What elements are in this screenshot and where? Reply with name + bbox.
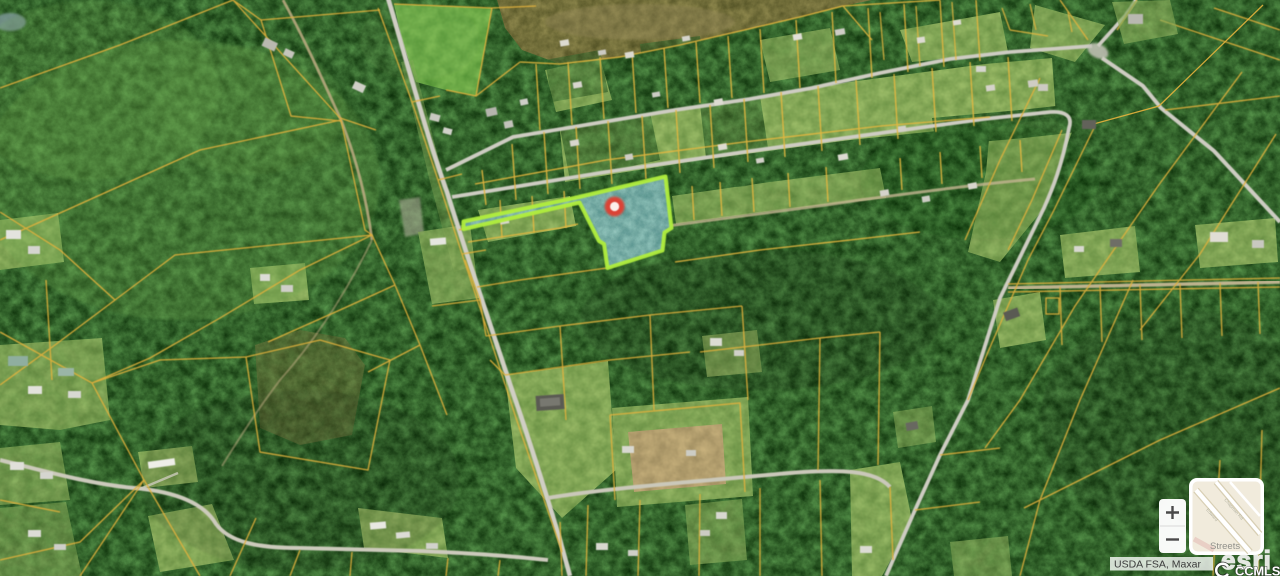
- svg-text:USDA FSA, Maxar: USDA FSA, Maxar: [1114, 559, 1201, 571]
- svg-text:CCMLS: CCMLS: [1235, 564, 1280, 576]
